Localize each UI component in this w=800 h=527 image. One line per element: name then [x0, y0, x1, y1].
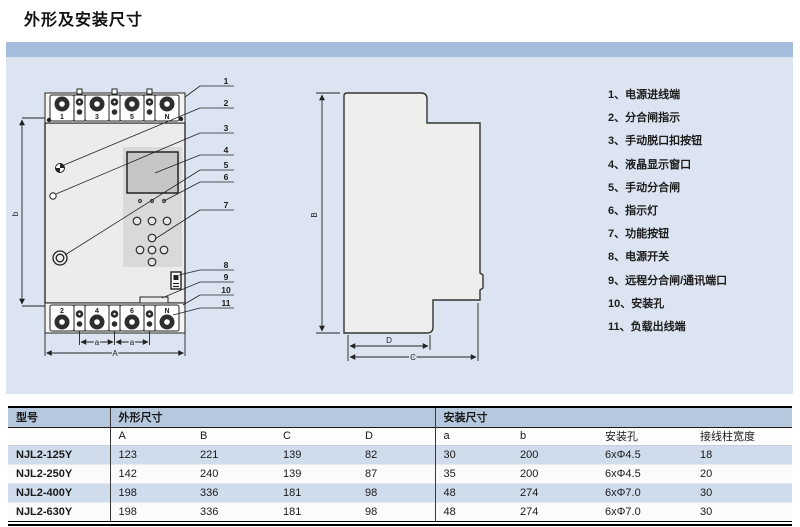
cell-b: 274	[512, 483, 597, 502]
cell-D: 98	[357, 502, 435, 521]
cell-model: NJL2-250Y	[8, 464, 110, 483]
cell-B: 336	[192, 502, 275, 521]
legend-item: 2、分合闸指示	[608, 109, 727, 132]
dimension-B	[316, 93, 340, 333]
svg-text:3: 3	[224, 123, 229, 133]
dim-label-b: b	[11, 211, 20, 216]
cell-D: 87	[357, 464, 435, 483]
svg-text:7: 7	[224, 200, 229, 210]
cell-D: 98	[357, 483, 435, 502]
cell-terminal-width: 20	[692, 464, 792, 483]
cell-A: 198	[110, 502, 192, 521]
legend-item: 3、手动脱口扣按钮	[608, 132, 727, 155]
header-outline-dims: 外形尺寸	[110, 407, 435, 427]
dim-label-C: C	[410, 353, 416, 362]
table-bottom-rule	[8, 521, 792, 522]
subheader-D: D	[357, 427, 435, 445]
svg-text:11: 11	[222, 298, 231, 308]
table-subheader-row: A B C D a b 安装孔 接线柱宽度	[8, 427, 792, 445]
svg-text:1: 1	[60, 114, 64, 121]
side-profile	[344, 93, 483, 333]
screw-cell	[74, 305, 85, 331]
table-bottom-rule-thick	[8, 524, 792, 526]
subheader-a: a	[435, 427, 512, 445]
manual-trip-button	[50, 193, 56, 199]
cell-B: 336	[192, 483, 275, 502]
manual-open-close-button	[53, 251, 67, 265]
table-row: NJL2-250Y 142 240 139 87 35 200 6xΦ4.5 2…	[8, 464, 792, 483]
svg-text:6: 6	[224, 172, 229, 182]
dimensions-table: 型号 外形尺寸 安装尺寸 A B C D a b 安装孔 接线柱宽度 NJL2-…	[8, 406, 792, 522]
table-row: NJL2-630Y 198 336 181 98 48 274 6xΦ7.0 3…	[8, 502, 792, 521]
open-close-indicator	[56, 164, 65, 173]
cell-C: 181	[275, 502, 357, 521]
cell-model: NJL2-125Y	[8, 445, 110, 464]
cell-a: 30	[435, 445, 512, 464]
svg-text:N: N	[164, 308, 169, 315]
svg-text:5: 5	[130, 114, 134, 121]
svg-text:3: 3	[95, 114, 99, 121]
header-install-dims: 安装尺寸	[435, 407, 792, 427]
front-view-drawing: 1 3 5 N	[10, 65, 245, 365]
svg-text:5: 5	[224, 160, 229, 170]
cell-hole: 6xΦ4.5	[597, 464, 692, 483]
cell-D: 82	[357, 445, 435, 464]
subheader-B: B	[192, 427, 275, 445]
cell-a: 48	[435, 502, 512, 521]
header-model: 型号	[8, 407, 110, 427]
dim-label-B: B	[310, 212, 319, 217]
legend-item: 5、手动分合闸	[608, 179, 727, 202]
subheader-terminal-width: 接线柱宽度	[692, 427, 792, 445]
cell-a: 35	[435, 464, 512, 483]
table-row: NJL2-400Y 198 336 181 98 48 274 6xΦ7.0 3…	[8, 483, 792, 502]
legend-item: 4、液晶显示窗口	[608, 156, 727, 179]
cell-model: NJL2-630Y	[8, 502, 110, 521]
cell-hole: 6xΦ7.0	[597, 483, 692, 502]
cell-terminal-width: 18	[692, 445, 792, 464]
cell-A: 198	[110, 483, 192, 502]
cell-b: 200	[512, 464, 597, 483]
screw-cell	[74, 95, 85, 121]
cell-C: 139	[275, 445, 357, 464]
subheader-hole: 安装孔	[597, 427, 692, 445]
dim-label-a1: a	[95, 338, 100, 347]
legend-item: 8、电源开关	[608, 248, 727, 271]
cell-A: 142	[110, 464, 192, 483]
svg-text:10: 10	[221, 285, 231, 295]
cell-hole: 6xΦ7.0	[597, 502, 692, 521]
legend-item: 6、指示灯	[608, 202, 727, 225]
comm-port	[140, 297, 168, 303]
legend-item: 1、电源进线端	[608, 86, 727, 109]
subheader-A: A	[110, 427, 192, 445]
svg-text:N: N	[164, 114, 169, 121]
callout-numbers: 1 2 3 4 5 6 7 8 9 10 11	[221, 76, 231, 308]
screw-cell	[109, 95, 120, 121]
screw-cell	[109, 305, 120, 331]
dimension-b	[22, 118, 45, 306]
svg-text:8: 8	[224, 260, 229, 270]
legend-item: 7、功能按钮	[608, 225, 727, 248]
section-divider-bar	[6, 42, 793, 57]
dim-label-D: D	[386, 336, 392, 345]
legend-item: 11、负载出线端	[608, 318, 727, 341]
dim-label-A: A	[112, 349, 118, 358]
cell-terminal-width: 30	[692, 502, 792, 521]
legend-item: 10、安装孔	[608, 295, 727, 318]
table-header-row: 型号 外形尺寸 安装尺寸	[8, 407, 792, 427]
screw-cell	[144, 305, 155, 331]
cell-hole: 6xΦ4.5	[597, 445, 692, 464]
svg-text:4: 4	[224, 145, 229, 155]
cell-B: 221	[192, 445, 275, 464]
cell-a: 48	[435, 483, 512, 502]
svg-text:4: 4	[95, 308, 99, 315]
subheader-b: b	[512, 427, 597, 445]
svg-text:2: 2	[60, 308, 64, 315]
cell-terminal-width: 30	[692, 483, 792, 502]
dim-label-a2: a	[130, 338, 135, 347]
table-row: NJL2-125Y 123 221 139 82 30 200 6xΦ4.5 1…	[8, 445, 792, 464]
cell-C: 139	[275, 464, 357, 483]
cell-A: 123	[110, 445, 192, 464]
cell-b: 200	[512, 445, 597, 464]
cell-C: 181	[275, 483, 357, 502]
svg-text:2: 2	[224, 98, 229, 108]
cell-model: NJL2-400Y	[8, 483, 110, 502]
svg-text:1: 1	[224, 76, 229, 86]
lcd-window	[127, 152, 178, 193]
parts-legend: 1、电源进线端 2、分合闸指示 3、手动脱口扣按钮 4、液晶显示窗口 5、手动分…	[608, 86, 727, 341]
page-title: 外形及安装尺寸	[24, 6, 143, 30]
screw-cell	[144, 95, 155, 121]
svg-text:6: 6	[130, 308, 134, 315]
subheader-blank	[8, 427, 110, 445]
legend-item: 9、远程分合闸/通讯端口	[608, 272, 727, 295]
subheader-C: C	[275, 427, 357, 445]
cell-B: 240	[192, 464, 275, 483]
cell-b: 274	[512, 502, 597, 521]
side-view-drawing: B D C	[300, 75, 500, 375]
svg-text:9: 9	[224, 272, 229, 282]
